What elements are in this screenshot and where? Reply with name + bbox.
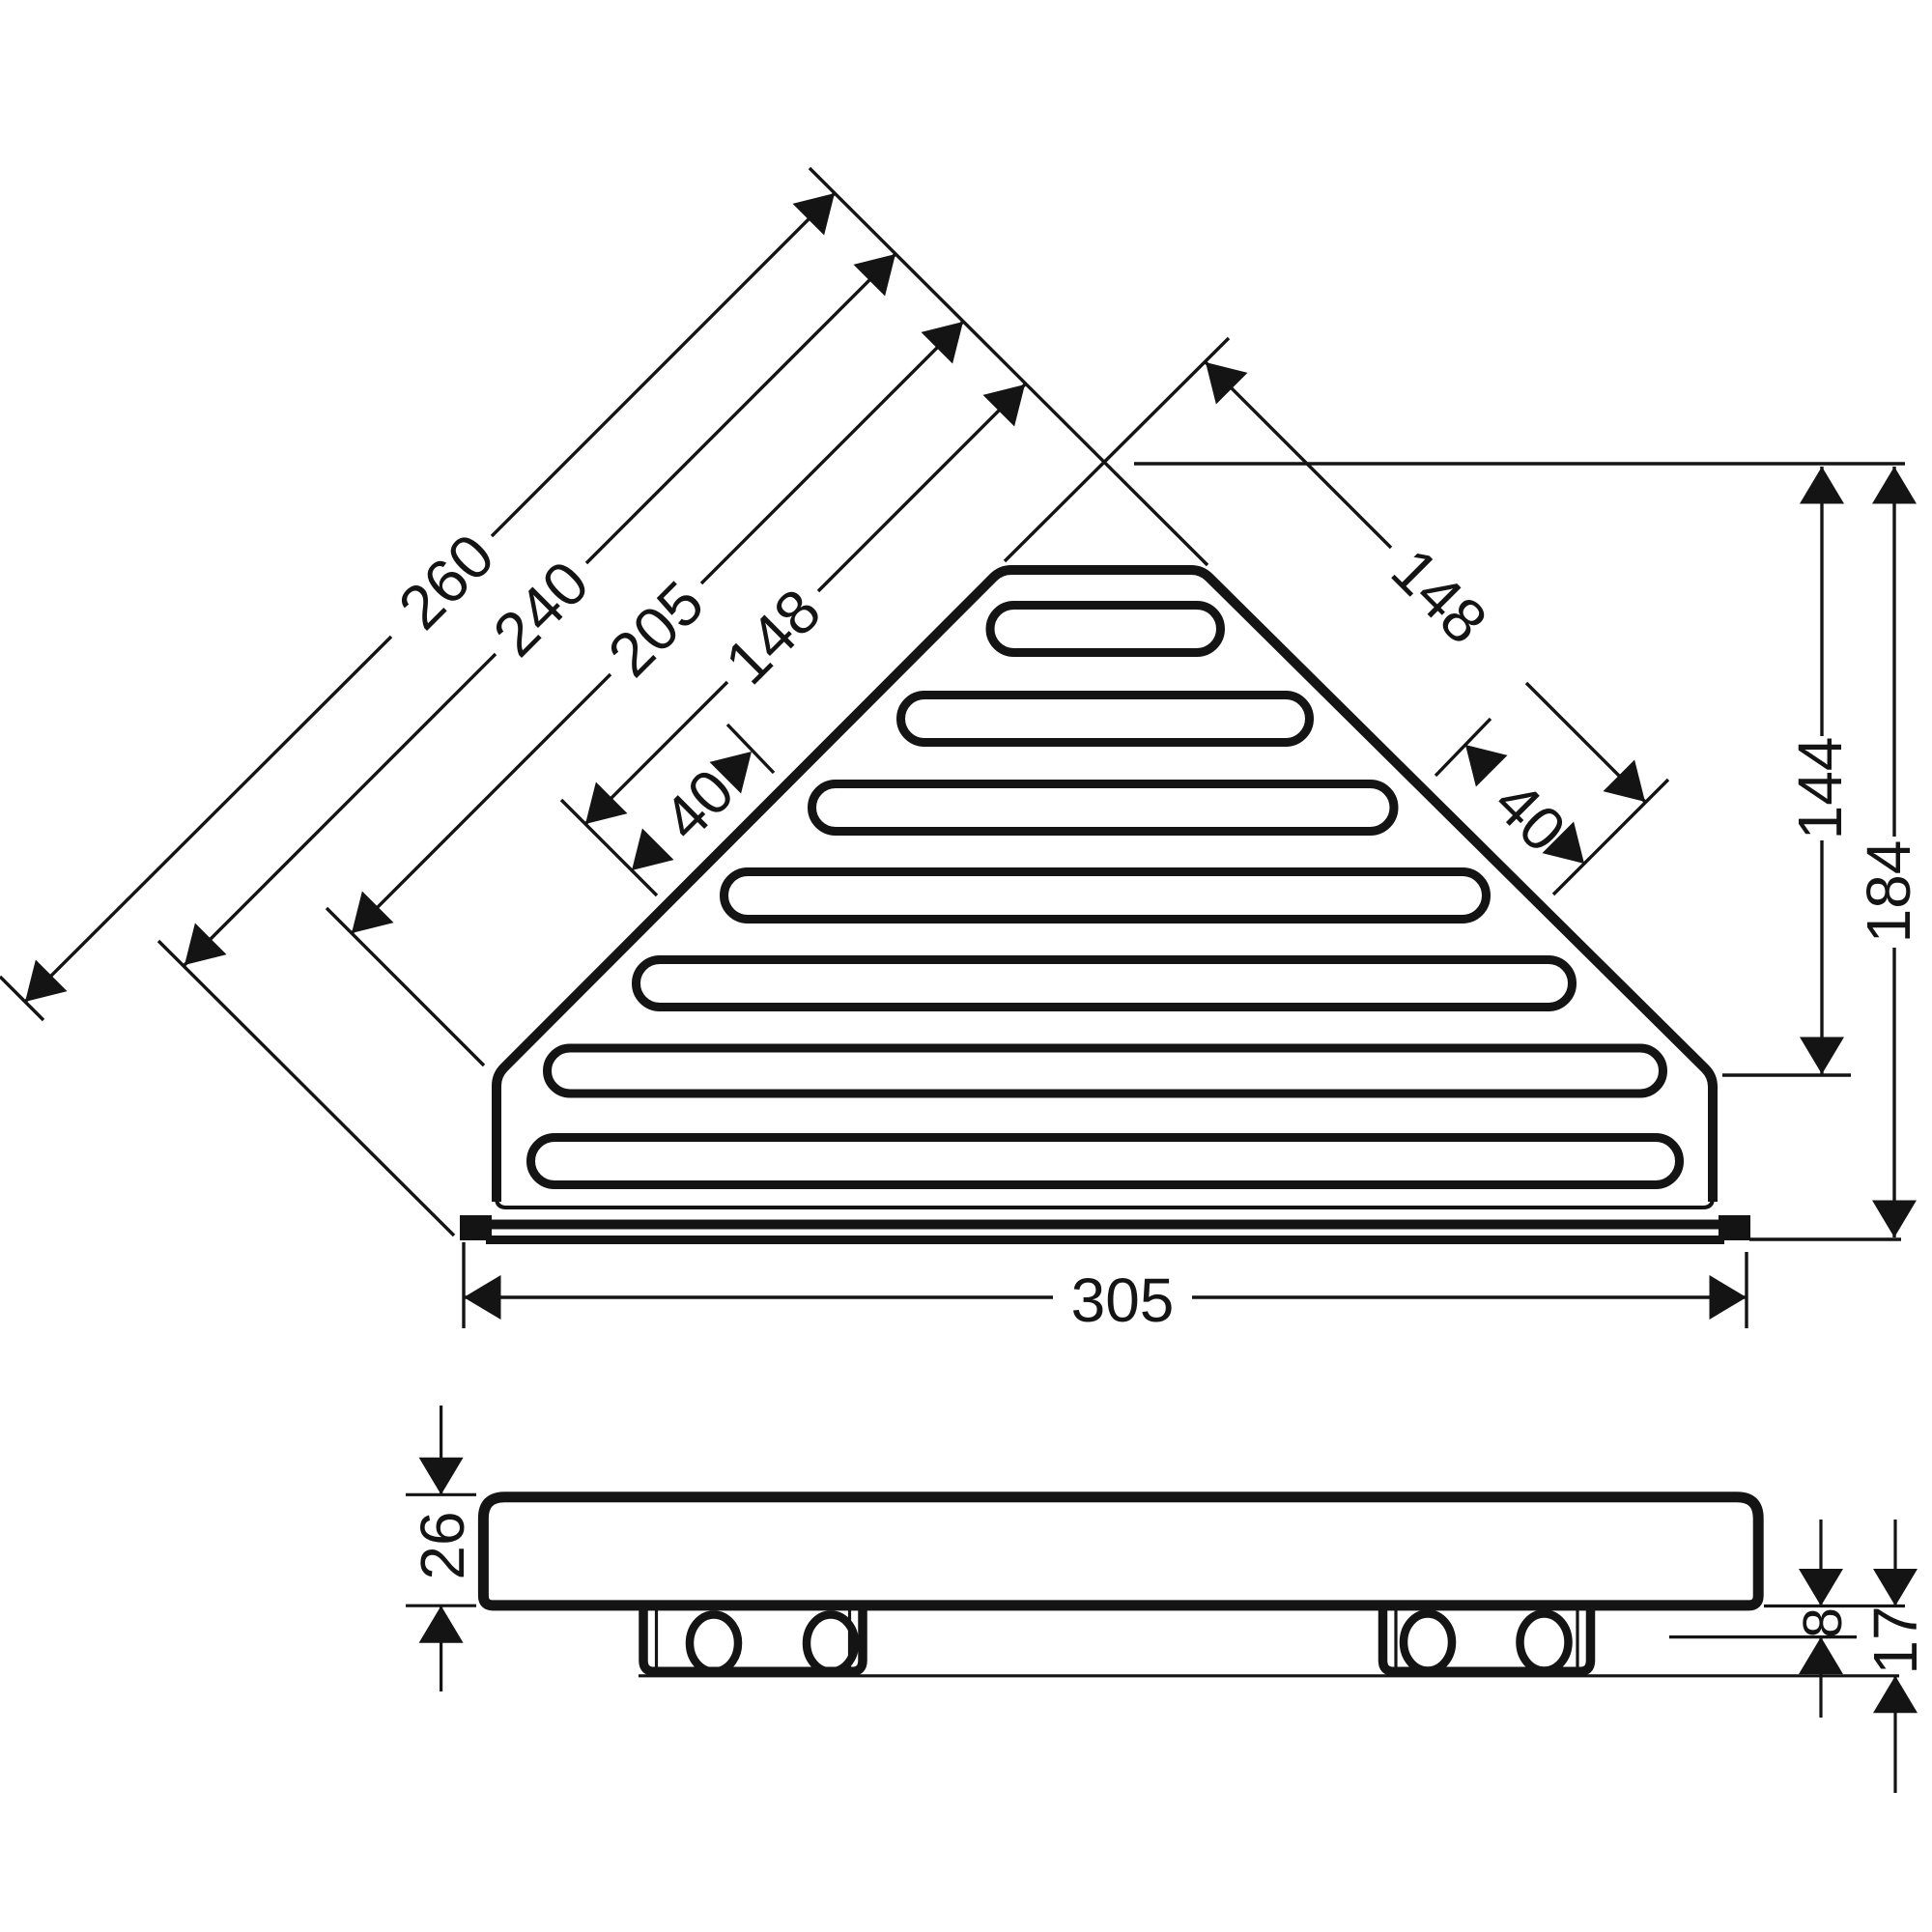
svg-text:148: 148 <box>1378 535 1500 657</box>
svg-text:144: 144 <box>1785 737 1855 840</box>
svg-text:8: 8 <box>1792 1607 1854 1638</box>
svg-text:17: 17 <box>1861 1605 1930 1674</box>
svg-text:205: 205 <box>595 568 717 690</box>
svg-text:148: 148 <box>712 576 834 697</box>
svg-text:305: 305 <box>1071 1265 1175 1335</box>
svg-text:26: 26 <box>408 1511 477 1579</box>
svg-text:184: 184 <box>1854 840 1923 944</box>
